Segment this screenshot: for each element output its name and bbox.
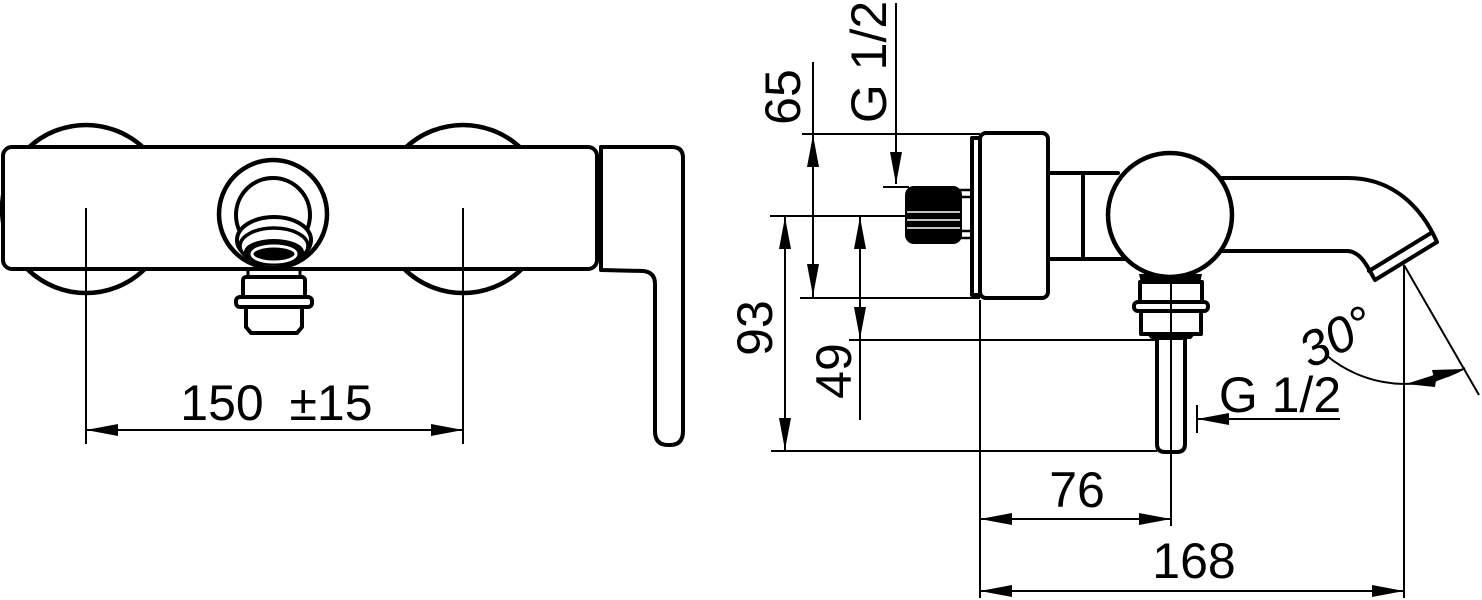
stub-thread xyxy=(246,307,302,333)
dim-76-arrow-left xyxy=(980,513,1012,525)
dim-49-arrow-top xyxy=(854,217,866,249)
dim-150-tolerance: ±15 xyxy=(289,375,372,431)
dim-49-value: 49 xyxy=(806,343,862,399)
angle-arrow-left xyxy=(1406,374,1437,387)
lever-handle-front xyxy=(601,147,683,445)
outlet-thread-text: G 1/2 xyxy=(1219,367,1341,423)
dim-168-arrow-left xyxy=(980,585,1012,597)
dim-axis-to-outlet-end: 93 xyxy=(727,216,791,451)
valve-body xyxy=(1108,153,1232,277)
dim-65-value: 65 xyxy=(755,69,811,125)
dim-93-value: 93 xyxy=(727,300,783,356)
dim-65-arrow-bottom xyxy=(807,264,819,296)
inlet-thread-arrow xyxy=(890,152,902,184)
faucet-dimension-drawing: 150 ±15 xyxy=(0,0,1482,600)
dim-150-arrow-left xyxy=(86,424,118,436)
dim-axis-to-nut: 49 xyxy=(806,216,866,420)
dim-93-arrow-bottom xyxy=(779,418,791,450)
angle-arrow-right xyxy=(1432,369,1464,382)
dim-65-arrow-top xyxy=(807,135,819,167)
dim-93-arrow-top xyxy=(779,217,791,249)
side-view: 65 G 1/2 93 49 G 1/2 xyxy=(727,1,1479,598)
dim-49-arrow-bottom xyxy=(854,307,866,339)
dim-76-value: 76 xyxy=(1049,462,1105,518)
dim-wall-to-outlet-axis: 76 xyxy=(980,462,1171,525)
wall-plate xyxy=(980,133,1048,298)
dim-150-value: 150 xyxy=(180,375,263,431)
dim-spout-angle: 30° xyxy=(1290,265,1479,598)
front-view: 150 ±15 xyxy=(2,125,683,445)
label-inlet-thread: G 1/2 xyxy=(841,1,909,187)
inlet-thread-text: G 1/2 xyxy=(841,1,897,123)
label-outlet-thread: G 1/2 xyxy=(1197,367,1341,433)
inlet-knurled-nut xyxy=(905,186,962,244)
dim-168-value: 168 xyxy=(1152,533,1235,589)
dim-wall-to-spout-tip: 168 xyxy=(980,533,1404,597)
dim-150-arrow-right xyxy=(431,424,463,436)
dim-168-arrow-right xyxy=(1372,585,1404,597)
drawing-canvas: 150 ±15 xyxy=(0,0,1482,600)
dim-76-arrow-right xyxy=(1139,513,1171,525)
spout-side xyxy=(1215,178,1437,280)
dim-plate-height: 65 xyxy=(755,62,819,298)
